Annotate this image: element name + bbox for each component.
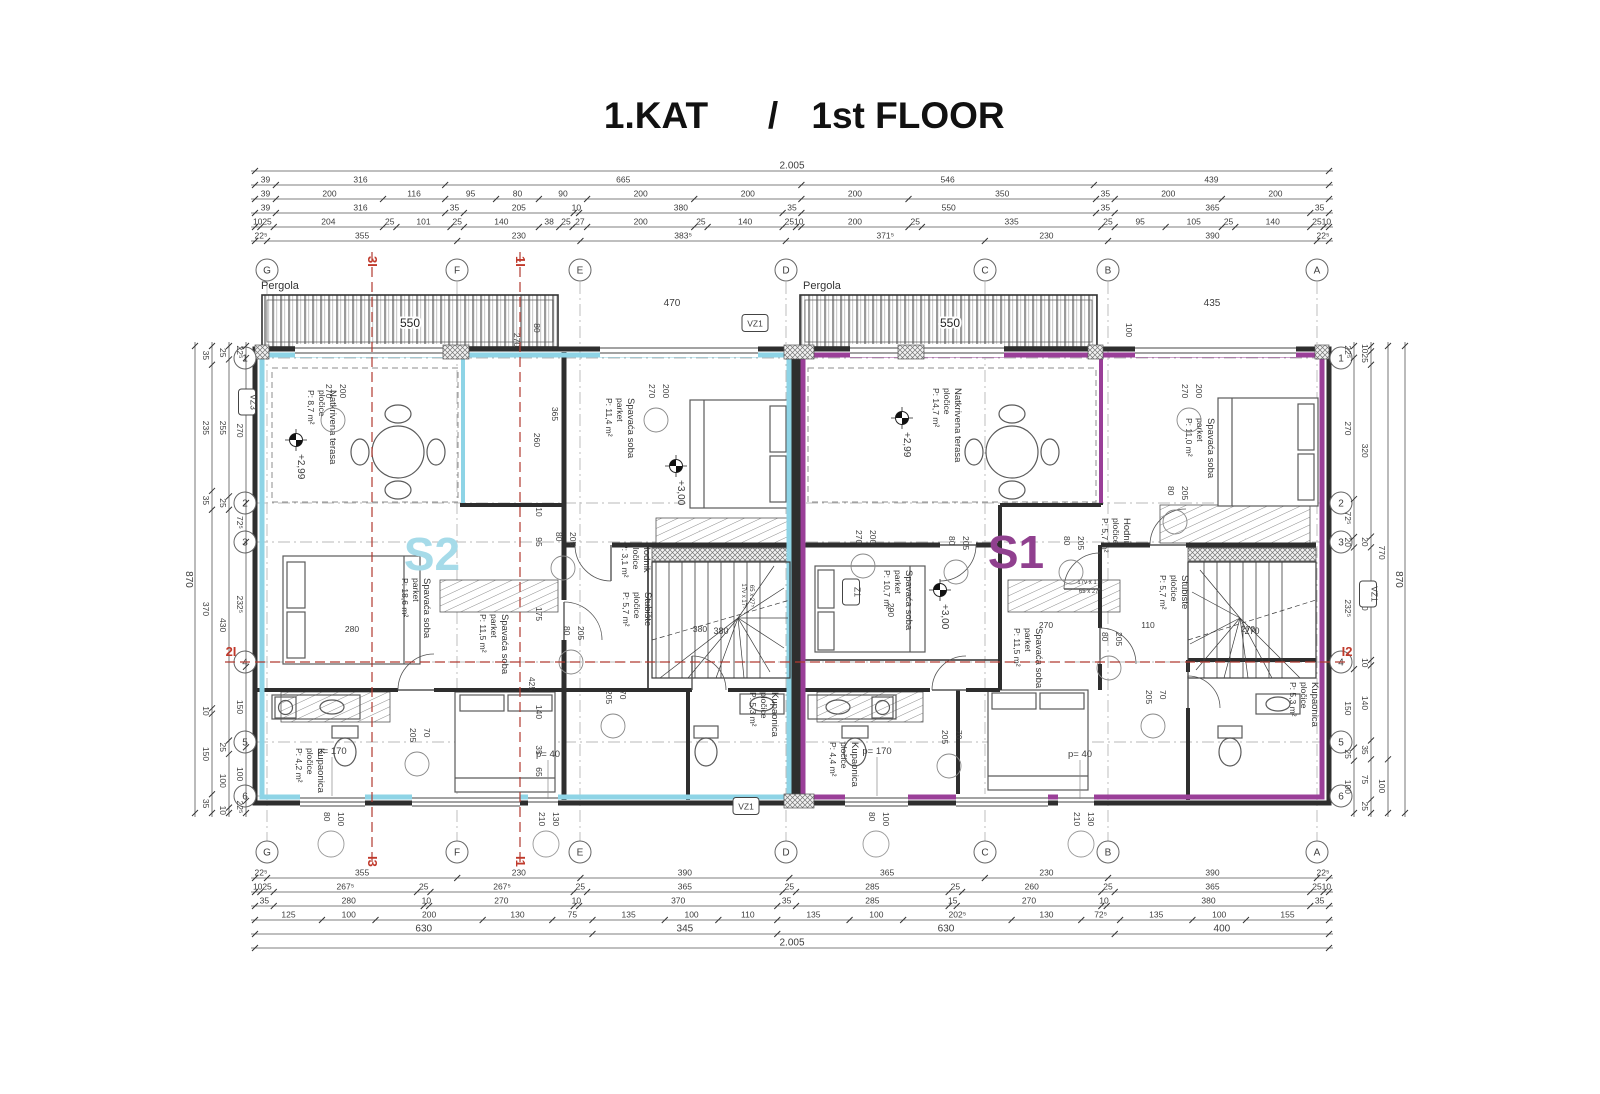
- room-label-line: Spavaća soba: [1033, 628, 1044, 689]
- dim-text: 230: [512, 868, 526, 878]
- inner-dim: 270: [1039, 620, 1053, 630]
- wardrobe-hatch: [1160, 505, 1310, 543]
- dim-text: 770: [1377, 546, 1387, 560]
- dim-text: 335: [1005, 217, 1019, 227]
- dim-text: 80: [513, 189, 523, 199]
- grid-bubble-label: C: [981, 266, 988, 277]
- dim-text: 390: [1205, 868, 1219, 878]
- dim-text: 150: [235, 700, 245, 714]
- dim-text: 25: [910, 217, 920, 227]
- dim-text: 35: [1101, 189, 1111, 199]
- dim-text: 345: [677, 924, 694, 935]
- pergola-label-left: Pergola: [261, 280, 300, 292]
- dim-text: 270: [235, 423, 245, 437]
- grid-bubble-label: A: [1314, 266, 1321, 277]
- room-label-line: pločice: [1111, 518, 1121, 545]
- stair-width-dim: 380: [713, 626, 728, 636]
- dim-text: 280: [342, 896, 356, 906]
- dim-text: 22⁵: [235, 800, 245, 813]
- room-label-line: Natkrivena terasa: [952, 388, 963, 463]
- room-label-line: parket: [411, 578, 421, 602]
- window-parapet-tag: p= 170: [317, 746, 346, 757]
- title-separator: /: [768, 95, 778, 136]
- dim-text: 25: [1103, 882, 1113, 892]
- dim-text: 630: [415, 924, 432, 935]
- room-label-line: parket: [893, 570, 903, 594]
- elevation-value: +2,99: [901, 432, 912, 458]
- leader-dim: 70: [422, 728, 432, 738]
- dim-text: 267⁵: [337, 882, 355, 892]
- inner-dim: 110: [1141, 620, 1155, 630]
- dim-text: 200: [322, 189, 336, 199]
- dim-text: 75: [1360, 775, 1370, 785]
- dim-text: 202⁵: [949, 910, 967, 920]
- room-label-line: parket: [1023, 628, 1033, 652]
- leader-dim: 200: [1194, 384, 1204, 398]
- room-label-line: Stubište: [642, 592, 653, 626]
- dim-text: 365: [1205, 882, 1219, 892]
- dim-text: 130: [510, 910, 524, 920]
- dim-text: 25: [385, 217, 395, 227]
- dim-text: 380: [674, 203, 688, 213]
- section-label: 1I: [513, 256, 528, 267]
- leader-dim: 205: [568, 532, 578, 546]
- leader-dim: 205: [1144, 690, 1154, 704]
- leader-dim: 205: [961, 536, 971, 550]
- dim-text: 10: [794, 217, 804, 227]
- dim-text: 200: [422, 910, 436, 920]
- dim-text: 27: [575, 217, 585, 227]
- dim-text: 365: [880, 868, 894, 878]
- room-label-line: Kupaonica: [1309, 682, 1320, 728]
- dim-text: 390: [1205, 231, 1219, 241]
- dim-text: 10: [1322, 217, 1332, 227]
- dim-text: 38: [544, 217, 554, 227]
- dim-text: 370: [201, 602, 211, 616]
- leader-dim: 205: [1180, 486, 1190, 500]
- grid-bubble-label: E: [577, 848, 584, 859]
- room-label-line: Spavaća soba: [1205, 418, 1216, 479]
- leader-dim: 210: [1072, 812, 1082, 826]
- bed: [690, 400, 790, 508]
- dim-text: 25: [785, 217, 795, 227]
- section-label: I1: [513, 856, 528, 867]
- dim-text: 2.005: [779, 938, 804, 949]
- leader-dim: 80: [554, 532, 564, 542]
- room-label-line: P: 8,7 m²: [306, 390, 316, 425]
- room-label-line: P: 5,7 m²: [1100, 518, 1110, 553]
- dim-text: 135: [806, 910, 820, 920]
- pergola-dim-left: 550: [400, 316, 420, 330]
- dim-text: 400: [1214, 924, 1231, 935]
- unit-label-s1: S1: [988, 526, 1044, 578]
- dim-text: 22⁵: [1343, 345, 1353, 358]
- dim-text: 25: [218, 743, 228, 753]
- room-label-line: pločice: [759, 692, 769, 719]
- inner-dim: 65 x 27⁵: [1079, 588, 1102, 595]
- dim-text: 39: [261, 175, 271, 185]
- inner-dim: 65: [534, 767, 544, 777]
- dim-text: 200: [848, 217, 862, 227]
- room-label-line: parket: [615, 398, 625, 422]
- room-label-line: P: 5,3 m²: [748, 692, 758, 727]
- title-floor: 1st FLOOR: [811, 95, 1004, 136]
- dim-text: 10: [1360, 344, 1370, 354]
- grid-bubble-label: A: [1314, 848, 1321, 859]
- dim-text: 270: [494, 896, 508, 906]
- leader-dim: 100: [881, 812, 891, 826]
- inner-dim: 17v x 17⁵: [740, 583, 747, 609]
- dim-text: 25: [561, 217, 571, 227]
- grid-bubble-label: 2: [1338, 499, 1344, 510]
- room-label-line: Spavaća soba: [499, 614, 510, 675]
- dim-text: 200: [1161, 189, 1175, 199]
- dim-text: 10: [1360, 658, 1370, 668]
- inner-dim: 380: [693, 624, 707, 634]
- leader-dim: 80: [947, 536, 957, 546]
- dim-text: 35: [1315, 896, 1325, 906]
- window-parapet-tag: p= 40: [1068, 749, 1092, 760]
- room-label-line: Natkrivena terasa: [327, 390, 338, 465]
- room-label-line: P: 5,7 m²: [1158, 575, 1168, 610]
- dim-text: 2.005: [779, 161, 804, 172]
- inner-dim: 290: [886, 603, 896, 617]
- dim-text: 72⁵: [1343, 512, 1353, 525]
- elevation-value: +2,99: [295, 454, 306, 480]
- grid-bubble-label: 4: [1338, 658, 1344, 669]
- dim-text: 100: [869, 910, 883, 920]
- dim-text: 285: [865, 882, 879, 892]
- dim-text: 383⁵: [674, 231, 692, 241]
- dim-text: 35: [260, 896, 270, 906]
- shaft-box-label: VZ1: [1370, 586, 1380, 602]
- bed: [988, 690, 1088, 790]
- dim-text: 75: [568, 910, 578, 920]
- dim-text: 35: [1360, 745, 1370, 755]
- elevation-value: +3,00: [939, 604, 950, 630]
- dim-text: 230: [1039, 231, 1053, 241]
- dim-text: 100: [1343, 780, 1353, 794]
- window-parapet-tag: p= 170: [862, 746, 891, 757]
- dim-text: 100: [1377, 779, 1387, 793]
- leader-dim: 270: [324, 384, 334, 398]
- room-label-line: P: 5,7 m²: [621, 592, 631, 627]
- dim-text: 10: [201, 706, 211, 716]
- elevation-value: +3,00: [675, 480, 686, 506]
- dim-text: 25: [1312, 217, 1322, 227]
- dim-text: 140: [738, 217, 752, 227]
- leader-dim: 205: [408, 728, 418, 742]
- grid-bubble-label: G: [263, 848, 271, 859]
- dim-text: 270: [1022, 896, 1036, 906]
- dim-text: 550: [942, 203, 956, 213]
- section-label: I3: [365, 856, 380, 867]
- dim-text: 200: [634, 189, 648, 199]
- inner-dim: 10: [534, 507, 544, 517]
- leader-dim: 70: [1158, 690, 1168, 700]
- leader-dim: 270: [647, 384, 657, 398]
- floor-plan: Pergola Pergola 550 550: [0, 0, 1600, 1094]
- dim-text: 260: [1025, 882, 1039, 892]
- dim-text: 116: [407, 189, 421, 199]
- inner-dim: 425: [527, 677, 537, 691]
- dim-text: 10: [1099, 896, 1109, 906]
- room-label-line: P: 4,2 m²: [294, 748, 304, 783]
- dim-text: 546: [941, 175, 955, 185]
- dim-text: 25: [262, 882, 272, 892]
- dim-text: 350: [995, 189, 1009, 199]
- grid-bubble-label: E: [577, 266, 584, 277]
- dim-text: 35: [1315, 203, 1325, 213]
- room-label-line: Kupaonica: [769, 692, 780, 738]
- inner-dim: 365: [550, 407, 560, 421]
- leader-dim: 200: [338, 384, 348, 398]
- bed: [283, 556, 420, 664]
- dim-text: 365: [678, 882, 692, 892]
- dim-text: 355: [355, 868, 369, 878]
- dim-text: 95: [1135, 217, 1145, 227]
- dim-text: 380: [1201, 896, 1215, 906]
- dim-text: 35: [1101, 203, 1111, 213]
- room-label-line: pločice: [1169, 575, 1179, 602]
- wardrobe-hatch: [656, 518, 790, 545]
- leader-dim: 80: [322, 812, 332, 822]
- dim-text: 370: [671, 896, 685, 906]
- dim-text: 320: [1360, 444, 1370, 458]
- dim-text: 205: [512, 203, 526, 213]
- leader-dim: 200: [661, 384, 671, 398]
- dim-text: 155: [1280, 910, 1294, 920]
- room-label-line: Spavaća soba: [421, 578, 432, 639]
- dim-text: 15: [948, 896, 958, 906]
- room-label-line: Spavaća soba: [625, 398, 636, 459]
- dim-text: 22⁵: [235, 346, 245, 359]
- section-label: 3I: [365, 256, 380, 267]
- inner-dim: 140: [534, 705, 544, 719]
- room-label-line: P: 11,0 m²: [1184, 418, 1194, 457]
- leader-dim: 130: [1086, 812, 1096, 826]
- dim-text: 35: [782, 896, 792, 906]
- inner-dim: 280: [345, 624, 359, 634]
- room-label-line: P: 14,7 m²: [931, 388, 941, 427]
- leader-dim: 205: [940, 730, 950, 744]
- inner-dim: 35: [534, 745, 544, 755]
- room-label-line: P: 4,4 m²: [828, 742, 838, 777]
- dim-text: 140: [494, 217, 508, 227]
- dim-text: 35: [201, 351, 211, 361]
- dim-text: 150: [201, 747, 211, 761]
- inner-dim: 80: [532, 323, 542, 333]
- leader-dim: 70: [618, 690, 628, 700]
- dim-text: 204: [321, 217, 335, 227]
- dim-text: 10: [422, 896, 432, 906]
- leader-dim: 205: [576, 626, 586, 640]
- dim-text: 100: [1212, 910, 1226, 920]
- dim-text: 10: [253, 882, 263, 892]
- leader-dim: 80: [562, 626, 572, 636]
- dim-text: 371⁵: [876, 231, 894, 241]
- room-label-line: P: 3,1 m²: [620, 543, 630, 578]
- inner-dim: 270: [1241, 624, 1255, 634]
- room-label-line: Hodnik: [641, 543, 652, 573]
- dim-text: 22⁵: [255, 868, 268, 878]
- leader-dim: 80: [1100, 632, 1110, 642]
- shaft-box-label: VZ1: [738, 802, 754, 812]
- dim-text: 230: [1039, 868, 1053, 878]
- unit-label-s2: S2: [404, 528, 460, 580]
- dim-text: 100: [218, 774, 228, 788]
- dim-text: 25: [1103, 217, 1113, 227]
- dim-text: 140: [1360, 696, 1370, 710]
- leader-dim: 100: [336, 812, 346, 826]
- dim-text: 230: [512, 231, 526, 241]
- grid-bubble-label: G: [263, 266, 271, 277]
- dim-text: 316: [353, 203, 367, 213]
- leader-dim: 70: [954, 730, 964, 740]
- dim-text: 10: [572, 896, 582, 906]
- dim-text: 232⁵: [1343, 599, 1353, 617]
- dim-text: 25: [218, 348, 228, 358]
- grid-bubble-label: 5: [1338, 738, 1344, 749]
- dim-text: 22⁵: [1316, 868, 1329, 878]
- leader-dim: 270: [1180, 384, 1190, 398]
- dim-text: 100: [342, 910, 356, 920]
- dim-text: 20: [1343, 537, 1353, 547]
- room-label-line: pločice: [942, 388, 952, 415]
- dim-text: 200: [634, 217, 648, 227]
- room-label-line: Kupaonica: [849, 742, 860, 788]
- grid-bubble-label: F: [454, 848, 460, 859]
- room-label-line: pločice: [632, 592, 642, 619]
- dim-text: 267⁵: [493, 882, 511, 892]
- dim-text: 870: [183, 571, 194, 588]
- dim-text: 200: [848, 189, 862, 199]
- shaft-crosshatch: [652, 548, 790, 561]
- leader-dim: 200: [868, 530, 878, 544]
- dim-text: 95: [466, 189, 476, 199]
- dim-text: 439: [1204, 175, 1218, 185]
- dim-text: 255: [218, 421, 228, 435]
- dim-text: 870: [1393, 571, 1404, 588]
- dim-text: 25: [262, 217, 272, 227]
- dim-text: 25: [1343, 749, 1353, 759]
- section-label: I2: [1342, 644, 1353, 659]
- grid-bubble-label: D: [782, 266, 789, 277]
- dim-text: 200: [1268, 189, 1282, 199]
- dim-text: 125: [281, 910, 295, 920]
- grid-bubble-label: D: [782, 848, 789, 859]
- dim-text: 25: [1360, 802, 1370, 812]
- leader-dim: 205: [1114, 632, 1124, 646]
- pergola-label-right: Pergola: [803, 280, 842, 292]
- inner-dim: 470: [664, 298, 681, 309]
- dim-text: 22⁵: [1316, 231, 1329, 241]
- dim-text: 150: [1343, 701, 1353, 715]
- dim-text: 235: [201, 421, 211, 435]
- dim-text: 110: [741, 910, 755, 920]
- dim-text: 10: [1322, 882, 1332, 892]
- leader-dim: 210: [537, 812, 547, 826]
- grid-bubble-label: B: [1105, 848, 1112, 859]
- pergola-dim-right: 550: [940, 316, 960, 330]
- inner-dim: 100: [1124, 323, 1134, 337]
- dim-text: 285: [865, 896, 879, 906]
- leader-dim: 130: [551, 812, 561, 826]
- room-label-line: P: 11,5 m²: [478, 614, 488, 653]
- leader-dim: 270: [854, 530, 864, 544]
- dim-text: 25: [576, 882, 586, 892]
- dim-text: 25: [785, 882, 795, 892]
- inner-dim: 17v x 17⁵: [1077, 579, 1103, 586]
- room-label-line: pločice: [305, 748, 315, 775]
- inner-dim: 65 x 27⁵: [748, 585, 755, 608]
- dim-text: 105: [1187, 217, 1201, 227]
- leader-dim: 205: [604, 690, 614, 704]
- shaft-box-label: VZ3: [249, 394, 259, 410]
- dim-text: 25: [452, 217, 462, 227]
- wardrobe-hatch: [281, 692, 390, 722]
- section-label: 2I: [226, 644, 237, 659]
- grid-bubble-label: F: [454, 266, 460, 277]
- room-label-line: P: 11,4 m²: [604, 398, 614, 437]
- room-label-line: Hodnik: [1121, 518, 1132, 548]
- dim-text: 390: [678, 868, 692, 878]
- dim-text: 35: [450, 203, 460, 213]
- dim-text: 100: [684, 910, 698, 920]
- room-label-line: parket: [489, 614, 499, 638]
- dim-text: 35: [787, 203, 797, 213]
- dim-text: 72⁵: [235, 516, 245, 529]
- leader-dim: 80: [1166, 486, 1176, 496]
- room-label-line: Stubište: [1179, 575, 1190, 609]
- shaft-box-label: Z1: [853, 587, 863, 597]
- inner-dim: 95: [534, 537, 544, 547]
- room-label-line: Spavaća soba: [903, 570, 914, 631]
- room-label-line: pločice: [1299, 682, 1309, 709]
- dim-text: 25: [218, 498, 228, 508]
- dim-text: 270: [1343, 421, 1353, 435]
- dim-text: 355: [355, 231, 369, 241]
- dim-text: 22⁵: [255, 231, 268, 241]
- room-label-line: pločice: [631, 543, 641, 570]
- drawing-canvas: Pergola Pergola 550 550: [0, 0, 1600, 1094]
- dim-text: 232⁵: [235, 595, 245, 613]
- dim-text: 665: [616, 175, 630, 185]
- room-label-line: pločice: [839, 742, 849, 769]
- grid-bubble-label: B: [1105, 266, 1112, 277]
- dim-text: 130: [1039, 910, 1053, 920]
- dim-text: 630: [938, 924, 955, 935]
- dim-text: 72⁵: [1094, 910, 1107, 920]
- shaft-crosshatch: [1188, 548, 1316, 561]
- room-label-line: P: 11,5 m²: [1012, 628, 1022, 667]
- dim-text: 10: [253, 217, 263, 227]
- bed: [1218, 398, 1318, 506]
- dim-text: 430: [218, 618, 228, 632]
- dim-text: 10: [218, 806, 228, 816]
- wardrobe-hatch: [817, 692, 923, 722]
- dim-text: 135: [1149, 910, 1163, 920]
- leader-dim: 80: [867, 812, 877, 822]
- shaft-box-label: VZ1: [747, 319, 763, 329]
- dim-text: 365: [1205, 203, 1219, 213]
- dim-text: 140: [1266, 217, 1280, 227]
- leader-dim: 205: [1076, 536, 1086, 550]
- title-kat: 1.KAT: [604, 95, 709, 136]
- room-label-line: P: 5,3 m²: [1288, 682, 1298, 717]
- dim-text: 25: [419, 882, 429, 892]
- dim-text: 100: [235, 767, 245, 781]
